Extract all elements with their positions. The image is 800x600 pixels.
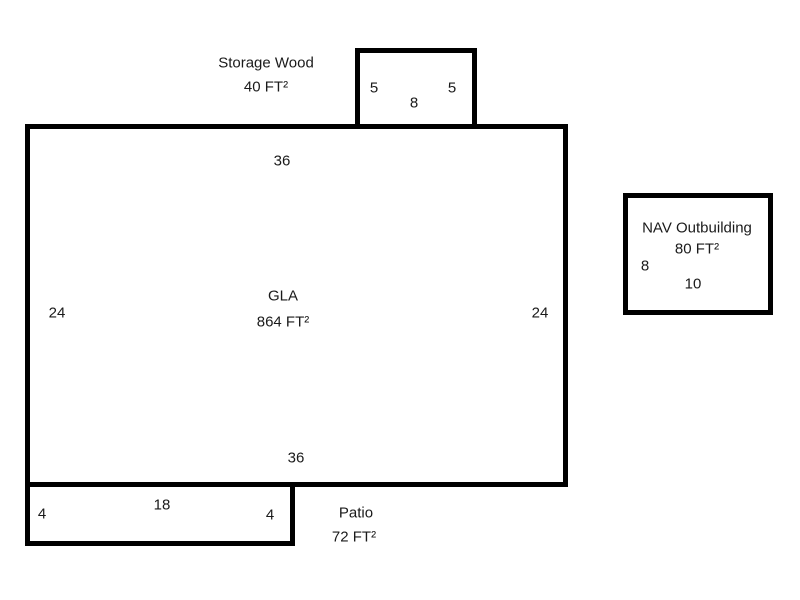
gla-label: GLA: [268, 289, 298, 304]
patio-area: 72 FT²: [332, 530, 376, 545]
gla-dim-left: 24: [49, 306, 66, 321]
gla-dim-top: 36: [274, 154, 291, 169]
patio-label: Patio: [339, 506, 373, 521]
nav-outbuilding-dim-bottom: 10: [685, 277, 702, 292]
gla-area: 864 FT²: [257, 315, 310, 330]
patio-dim-top: 18: [154, 498, 171, 513]
storage-dim-left: 5: [370, 81, 378, 96]
floor-plan-sketch: Storage Wood 40 FT² 5 5 8 GLA 864 FT² 36…: [0, 0, 800, 600]
storage-wood-area: 40 FT²: [244, 80, 288, 95]
nav-outbuilding-area: 80 FT²: [675, 242, 719, 257]
gla-dim-right: 24: [532, 306, 549, 321]
patio-dim-left: 4: [38, 507, 46, 522]
storage-wood-label: Storage Wood: [218, 56, 314, 71]
nav-outbuilding-label: NAV Outbuilding: [642, 221, 752, 236]
storage-dim-right: 5: [448, 81, 456, 96]
nav-outbuilding-dim-left: 8: [641, 259, 649, 274]
gla-outline: [25, 124, 568, 487]
gla-dim-bottom: 36: [288, 451, 305, 466]
patio-dim-right: 4: [266, 508, 274, 523]
storage-dim-bottom: 8: [410, 96, 418, 111]
patio-outline: [25, 482, 295, 546]
